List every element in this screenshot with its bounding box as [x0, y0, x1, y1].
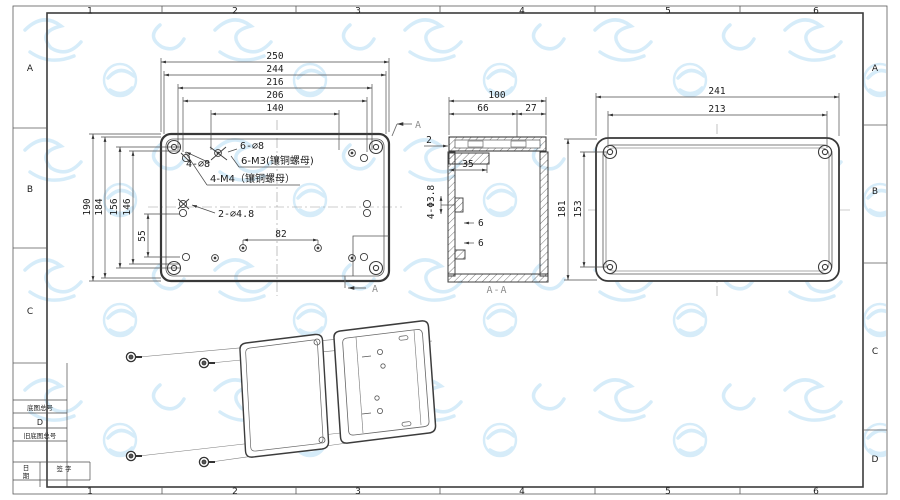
- label-6-m3-insert: 6-M3(镶铜螺母): [241, 154, 314, 167]
- dim-184: 184: [94, 198, 105, 215]
- dim-35: 35: [462, 159, 473, 170]
- label-2-d48: 2-∅4.8: [218, 209, 254, 220]
- zone-col-3b: 3: [355, 487, 361, 497]
- section-label-a-top: A: [415, 120, 421, 131]
- zone-row-a: A: [27, 64, 34, 74]
- zone-row-a-right: A: [872, 64, 879, 74]
- dim-213: 213: [708, 104, 725, 115]
- dim-190: 190: [82, 198, 93, 215]
- zone-col-4b: 4: [519, 487, 525, 497]
- zone-col-5: 5: [665, 7, 671, 17]
- dim-100: 100: [488, 90, 505, 101]
- label-4-d8: 4-∅8: [186, 159, 210, 170]
- zone-col-1b: 1: [87, 487, 93, 497]
- zone-row-b: B: [27, 185, 33, 195]
- title-block-date-char1: 日: [23, 464, 30, 472]
- dim-146: 146: [122, 198, 133, 215]
- dim-153: 153: [573, 200, 584, 217]
- zone-col-2b: 2: [232, 487, 238, 497]
- title-block-date-char2: 期: [23, 472, 30, 480]
- section-caption: A-A: [486, 285, 507, 296]
- zone-col-6b: 6: [813, 487, 819, 497]
- dim-27: 27: [525, 103, 536, 114]
- dim-241: 241: [708, 86, 725, 97]
- dim-156: 156: [109, 198, 120, 215]
- dim-206: 206: [266, 90, 283, 101]
- dim-250: 250: [266, 51, 283, 62]
- iso-lid: [240, 334, 329, 457]
- title-block-rev: D: [37, 418, 43, 427]
- zone-col-3: 3: [355, 7, 361, 17]
- drawing-canvas: 1 2 3 4 5 6 1 2 3 4 5 6 A B C A B C D 底图…: [0, 0, 900, 500]
- dim-244: 244: [266, 64, 283, 75]
- zone-col-2: 2: [232, 7, 238, 17]
- dim-140: 140: [266, 103, 283, 114]
- zone-row-b-right: B: [872, 187, 878, 197]
- label-6-d8: 6-∅8: [240, 141, 264, 152]
- dim-rib-6-top: 6: [478, 218, 484, 229]
- zone-row-d-right: D: [872, 455, 879, 465]
- dim-wall-2: 2: [426, 135, 432, 146]
- title-block-master-no: 底图总号: [27, 403, 54, 412]
- title-block-old-master-no: 旧底图总号: [24, 431, 57, 440]
- dim-rib-6-bottom: 6: [478, 238, 484, 249]
- zone-col-4: 4: [519, 7, 525, 17]
- dim-55: 55: [137, 230, 148, 241]
- iso-body: [334, 321, 436, 443]
- dim-82: 82: [275, 229, 286, 240]
- dim-216: 216: [266, 77, 283, 88]
- dim-66: 66: [477, 103, 489, 114]
- zone-col-1: 1: [87, 7, 93, 17]
- zone-col-6: 6: [813, 7, 819, 17]
- zone-col-5b: 5: [665, 487, 671, 497]
- drawing-sheet: 1 2 3 4 5 6 1 2 3 4 5 6 A B C A B C D 底图…: [0, 0, 900, 500]
- zone-row-c-right: C: [872, 347, 878, 357]
- dim-181: 181: [557, 200, 568, 217]
- label-4-d38: 4-Φ3.8: [426, 185, 437, 220]
- title-block-sign: 签 字: [56, 464, 72, 473]
- label-4-m4-insert: 4-M4（镶铜螺母）: [210, 172, 295, 185]
- zone-row-c: C: [27, 307, 33, 317]
- section-label-a-bottom: A: [372, 284, 378, 295]
